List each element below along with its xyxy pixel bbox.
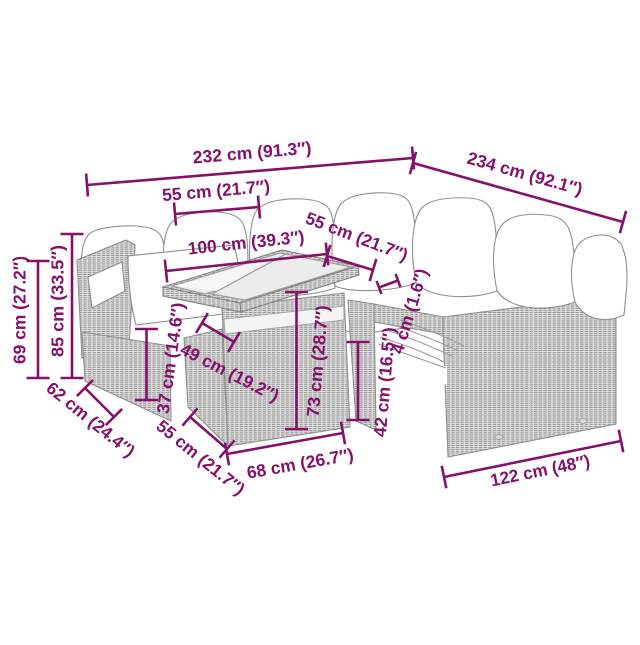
- svg-text:69 cm (27.2″): 69 cm (27.2″): [10, 256, 30, 364]
- svg-text:85 cm (33.5″): 85 cm (33.5″): [48, 245, 68, 357]
